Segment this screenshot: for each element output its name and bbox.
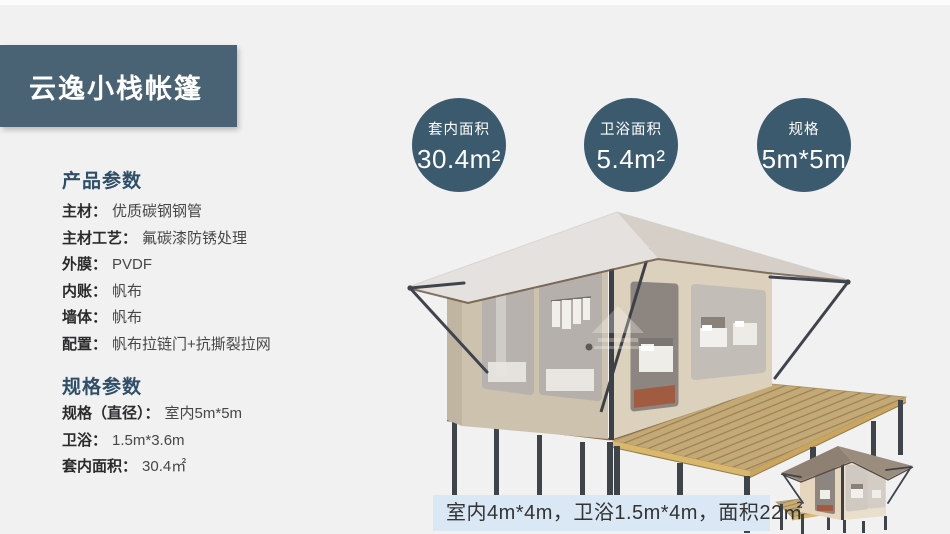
stat-label: 卫浴面积 — [600, 118, 662, 139]
param-row: 外膜：PVDF — [62, 255, 271, 274]
stat-value: 30.4m² — [417, 145, 501, 173]
small-window-1 — [848, 467, 866, 509]
param-value: 室内5m*5m — [165, 405, 243, 422]
window-3 — [695, 288, 762, 376]
dimensions-note: 室内4m*4m，卫浴1.5m*4m，面积22㎡ — [433, 495, 770, 531]
title-banner: 云逸小栈帐篷 — [0, 45, 237, 127]
stat-circle-size: 规格 5m*5m — [757, 98, 851, 192]
stat-circle-bathroom-area: 卫浴面积 5.4m² — [584, 98, 678, 192]
stat-circle-indoor-area: 套内面积 30.4m² — [412, 98, 506, 192]
param-label: 配置： — [62, 336, 107, 353]
stat-value: 5m*5m — [762, 145, 847, 173]
param-value: 30.4㎡ — [142, 458, 186, 475]
param-value: 优质碳钢钢管 — [112, 203, 202, 220]
param-label: 卫浴： — [62, 432, 107, 449]
param-value: 帆布拉链门+抗撕裂拉网 — [112, 336, 271, 353]
spec-params-heading: 规格参数 — [62, 372, 142, 399]
page-title: 云逸小栈帐篷 — [29, 67, 203, 106]
param-value: 帆布 — [112, 283, 142, 300]
param-value: 1.5m*3.6m — [112, 432, 185, 449]
param-row: 套内面积：30.4㎡ — [62, 457, 242, 476]
param-label: 套内面积： — [62, 458, 137, 475]
window-2 — [543, 273, 598, 397]
param-label: 主材： — [62, 203, 107, 220]
param-row: 墙体：帆布 — [62, 308, 271, 327]
param-value: PVDF — [112, 256, 152, 273]
param-row: 配置：帆布拉链门+抗撕裂拉网 — [62, 335, 271, 354]
stat-label: 套内面积 — [428, 118, 490, 139]
param-label: 墙体： — [62, 309, 107, 326]
small-corner-pole — [841, 461, 844, 520]
param-row: 内账：帆布 — [62, 282, 271, 301]
param-label: 内账： — [62, 283, 107, 300]
stat-value: 5.4m² — [597, 145, 666, 173]
param-value: 氟碳漆防锈处理 — [142, 230, 247, 247]
param-row: 主材工艺：氟碳漆防锈处理 — [62, 229, 271, 248]
param-row: 规格（直径）：室内5m*5m — [62, 404, 242, 423]
param-label: 外膜： — [62, 256, 107, 273]
stat-label: 规格 — [789, 118, 820, 139]
param-value: 帆布 — [112, 309, 142, 326]
param-row: 主材：优质碳钢钢管 — [62, 202, 271, 221]
product-params-list: 主材：优质碳钢钢管 主材工艺：氟碳漆防锈处理 外膜：PVDF 内账：帆布 墙体：… — [62, 202, 271, 361]
param-label: 规格（直径）： — [62, 405, 160, 422]
presentation-slide: 云逸小栈帐篷 产品参数 主材：优质碳钢钢管 主材工艺：氟碳漆防锈处理 外膜：PV… — [0, 0, 950, 534]
param-row: 卫浴：1.5m*3.6m — [62, 431, 242, 450]
product-params-heading: 产品参数 — [62, 166, 142, 193]
corner-pole — [609, 251, 614, 440]
param-label: 主材工艺： — [62, 230, 137, 247]
spec-params-list: 规格（直径）：室内5m*5m 卫浴：1.5m*3.6m 套内面积：30.4㎡ — [62, 404, 242, 484]
